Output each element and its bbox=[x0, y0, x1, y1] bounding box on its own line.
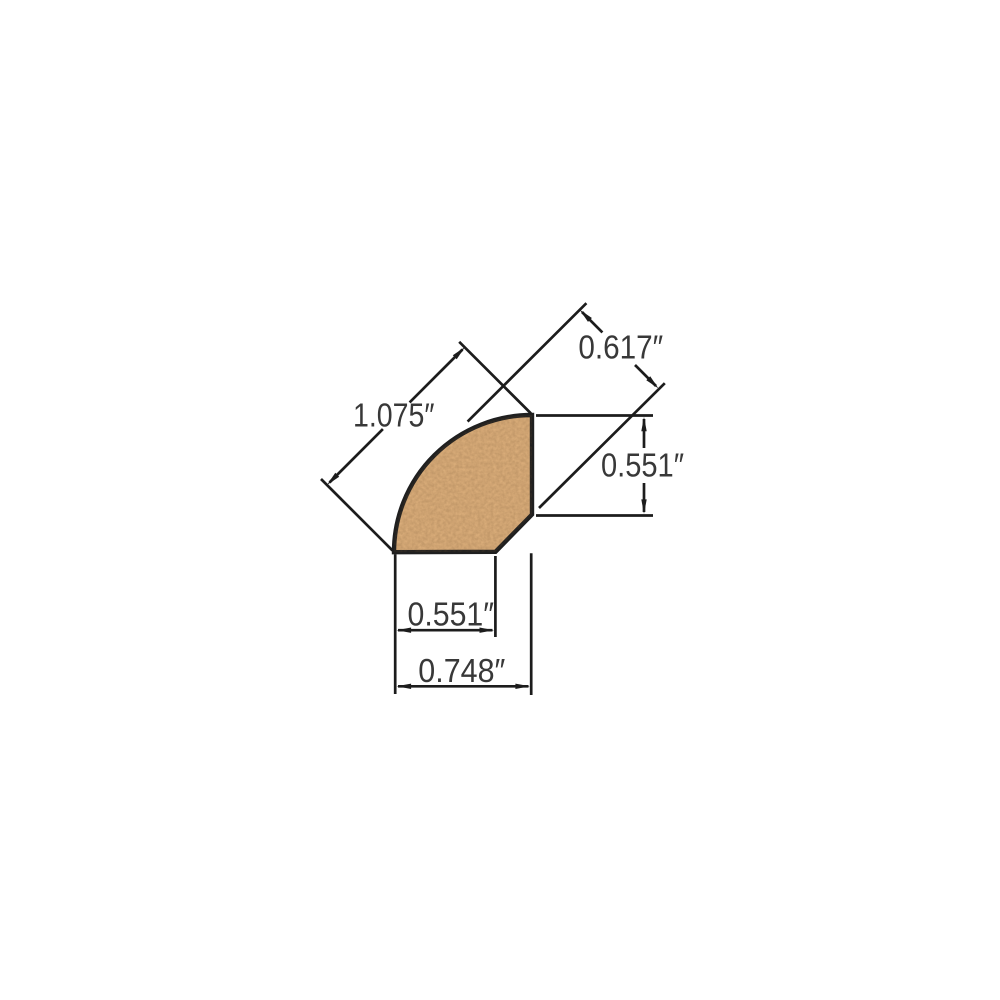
svg-text:0.617″: 0.617″ bbox=[578, 330, 663, 367]
svg-text:1.075″: 1.075″ bbox=[353, 398, 435, 435]
svg-text:0.551″: 0.551″ bbox=[601, 448, 684, 485]
svg-text:0.748″: 0.748″ bbox=[418, 653, 505, 690]
svg-text:0.551″: 0.551″ bbox=[408, 597, 495, 634]
